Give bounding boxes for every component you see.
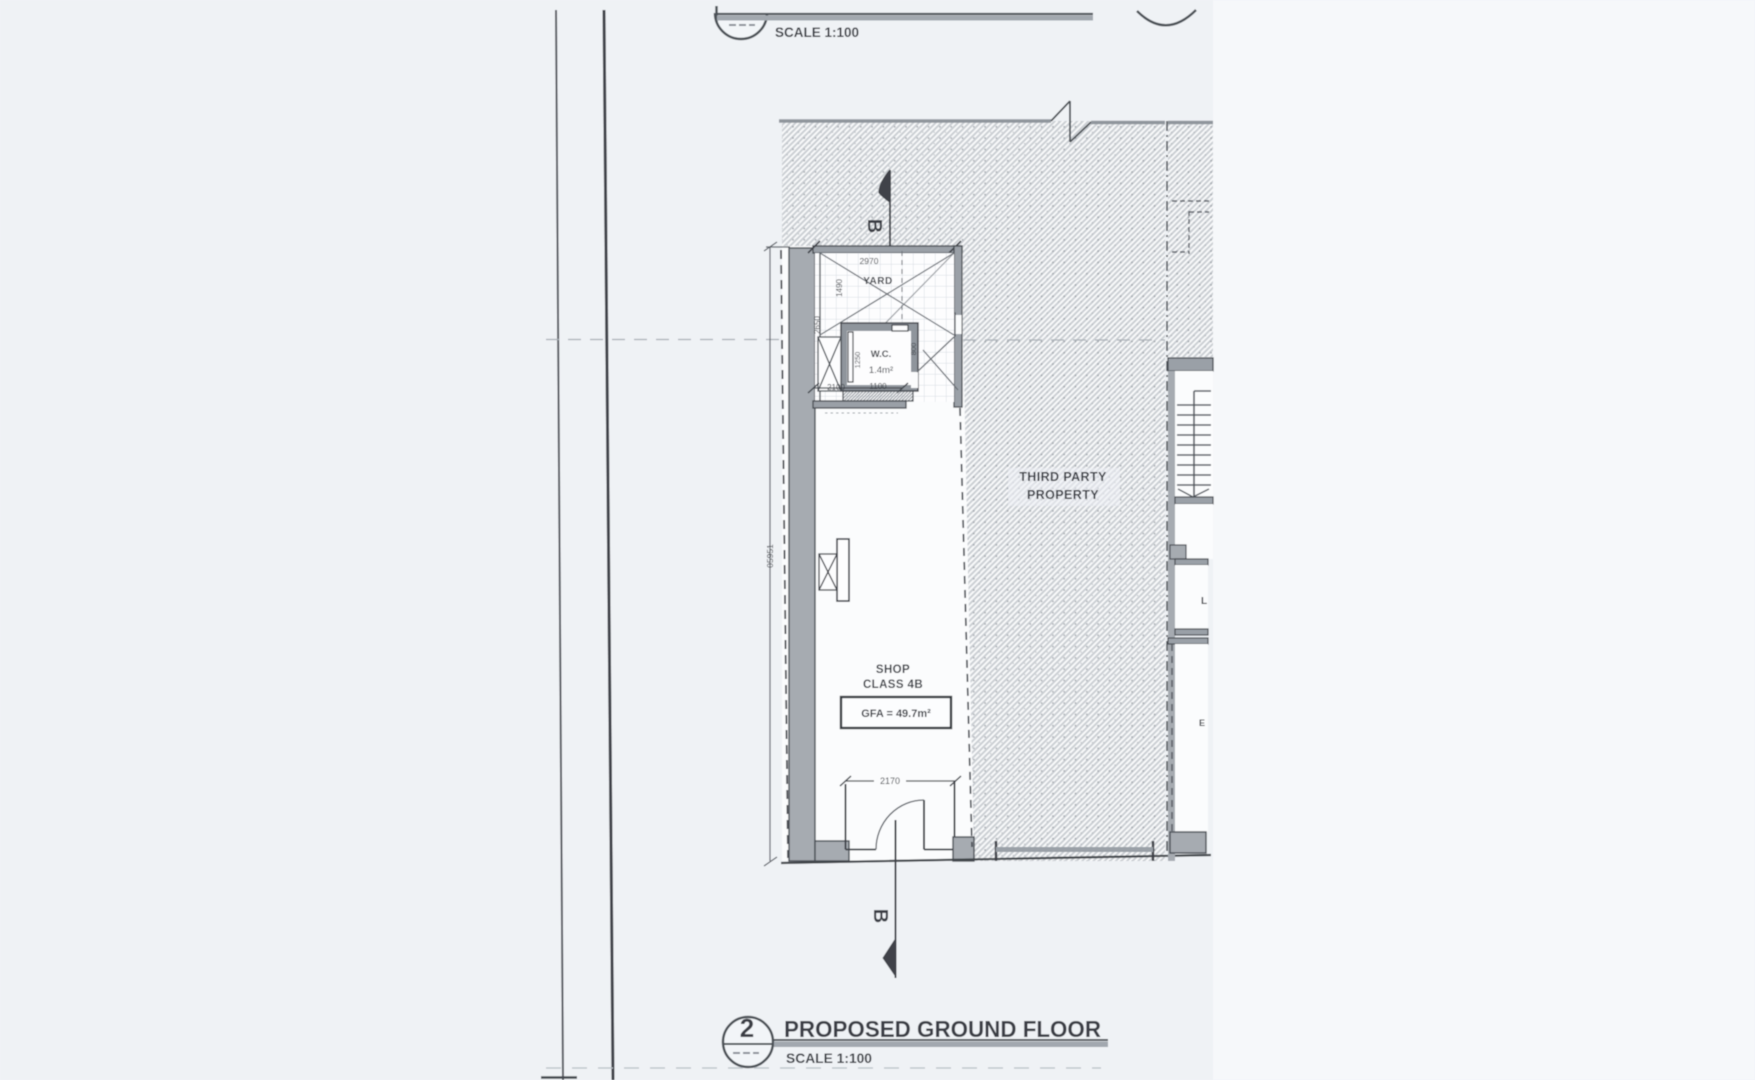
svg-text:PROPERTY: PROPERTY xyxy=(1027,488,1099,502)
svg-text:2970: 2970 xyxy=(860,256,879,266)
svg-text:B: B xyxy=(863,219,885,233)
svg-text:GFA = 49.7m²: GFA = 49.7m² xyxy=(861,708,931,720)
svg-text:SCALE 1:100: SCALE 1:100 xyxy=(775,24,859,40)
svg-text:THIRD PARTY: THIRD PARTY xyxy=(1019,470,1107,484)
svg-text:PROPOSED GROUND FLOOR: PROPOSED GROUND FLOOR xyxy=(784,1016,1101,1042)
svg-text:W.C.: W.C. xyxy=(871,349,892,360)
svg-text:L: L xyxy=(1201,596,1207,607)
svg-text:2650: 2650 xyxy=(813,316,822,334)
svg-text:E: E xyxy=(1199,718,1205,728)
svg-text:1.4m²: 1.4m² xyxy=(869,365,893,376)
svg-text:2170: 2170 xyxy=(880,776,900,786)
svg-text:1250: 1250 xyxy=(853,352,862,369)
svg-text:CLASS 4B: CLASS 4B xyxy=(863,679,923,691)
svg-text:1100: 1100 xyxy=(869,382,887,391)
svg-text:SCALE 1:100: SCALE 1:100 xyxy=(786,1050,872,1066)
svg-text:YARD: YARD xyxy=(863,276,892,287)
svg-text:1490: 1490 xyxy=(835,279,844,297)
svg-text:800: 800 xyxy=(909,343,918,356)
svg-text:SHOP: SHOP xyxy=(876,664,910,676)
svg-text:2: 2 xyxy=(740,1013,754,1043)
svg-text:B: B xyxy=(869,909,891,923)
svg-text:05951: 05951 xyxy=(765,544,775,568)
